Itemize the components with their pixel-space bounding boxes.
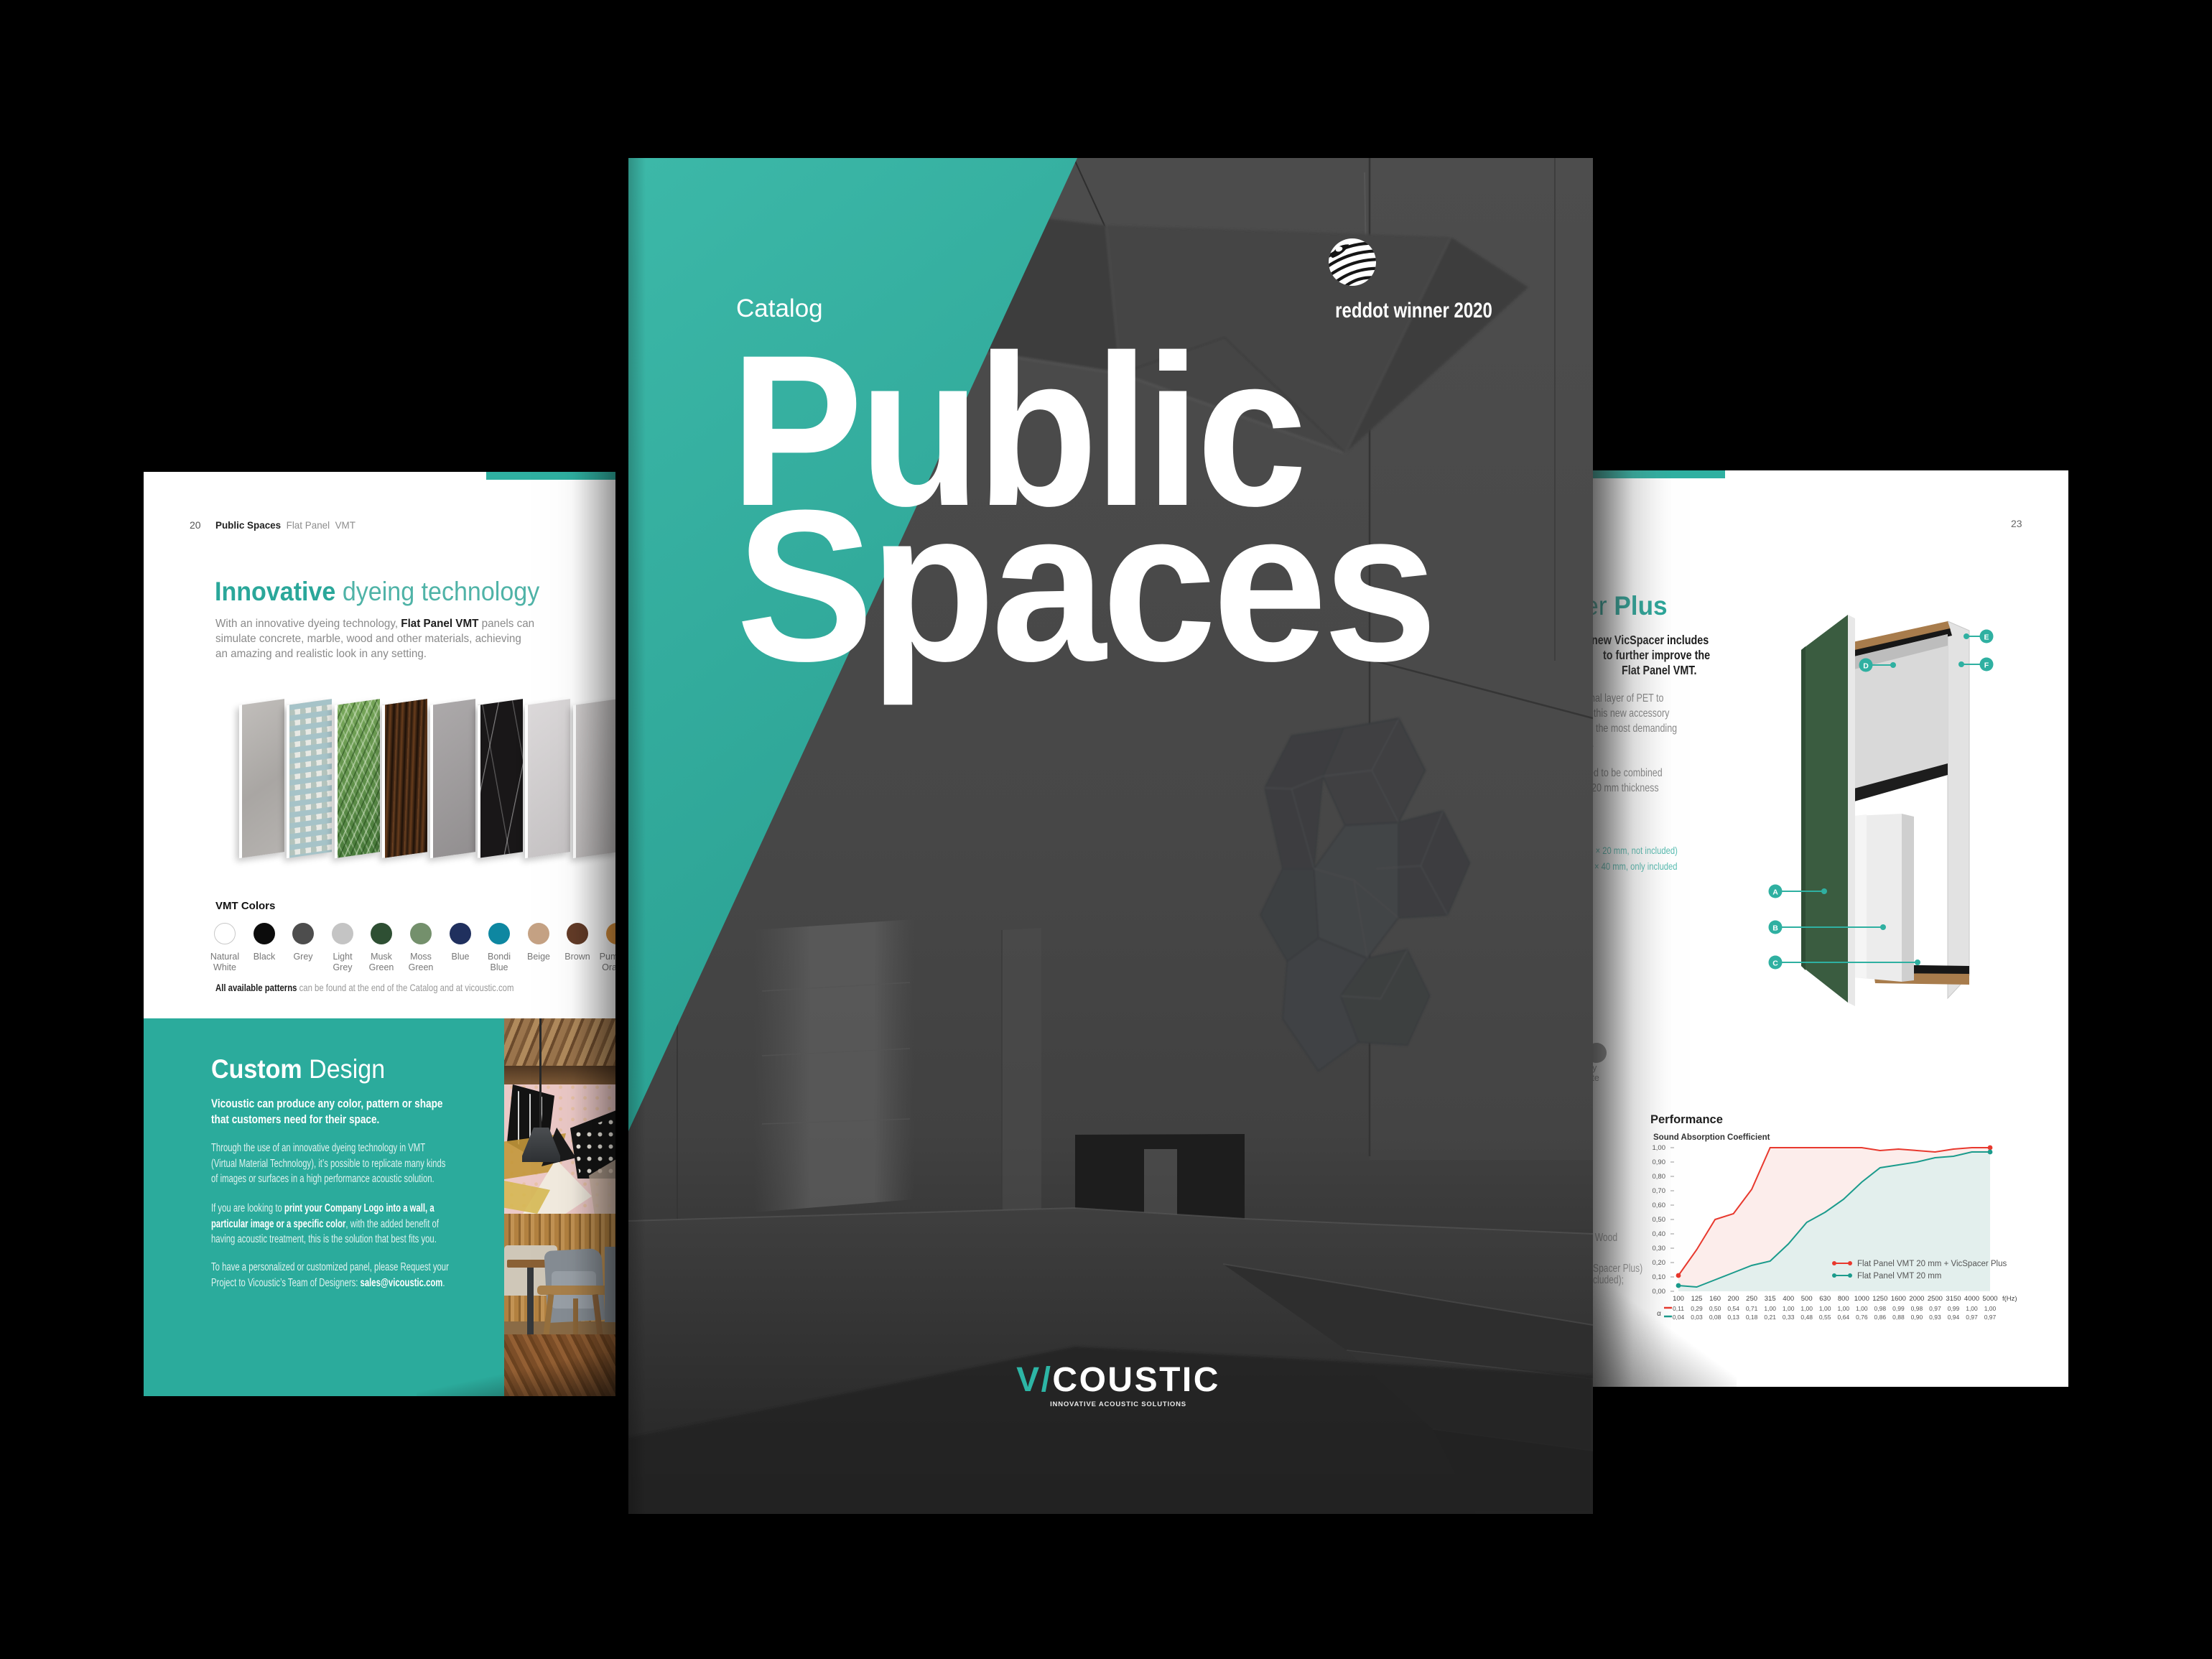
svg-text:630: 630	[1819, 1295, 1831, 1303]
svg-text:1,00: 1,00	[1966, 1305, 1978, 1312]
svg-text:C: C	[1772, 959, 1778, 968]
svg-text:0,90: 0,90	[1911, 1314, 1923, 1321]
svg-text:500: 500	[1801, 1295, 1813, 1303]
svg-text:0,18: 0,18	[1746, 1314, 1758, 1321]
svg-text:0,21: 0,21	[1764, 1314, 1776, 1321]
svg-text:1600: 1600	[1891, 1295, 1906, 1303]
svg-text:400: 400	[1783, 1295, 1794, 1303]
svg-text:0,99: 0,99	[1892, 1305, 1905, 1312]
svg-text:2000: 2000	[1909, 1295, 1924, 1303]
svg-text:1,00: 1,00	[1764, 1305, 1776, 1312]
svg-text:0,93: 0,93	[1929, 1314, 1941, 1321]
svg-text:D: D	[1863, 662, 1869, 671]
svg-text:2500: 2500	[1928, 1295, 1943, 1303]
svg-text:0,97: 0,97	[1966, 1314, 1978, 1321]
svg-text:250: 250	[1746, 1295, 1757, 1303]
svg-text:Flat Panel VMT 20 mm: Flat Panel VMT 20 mm	[1857, 1272, 1941, 1281]
svg-text:f(Hz): f(Hz)	[2002, 1295, 2017, 1303]
svg-text:800: 800	[1838, 1295, 1849, 1303]
svg-text:0,88: 0,88	[1892, 1314, 1905, 1321]
svg-text:F: F	[1984, 661, 1989, 670]
svg-text:1250: 1250	[1872, 1295, 1887, 1303]
svg-text:1,00: 1,00	[1819, 1305, 1831, 1312]
svg-text:1,00: 1,00	[1838, 1305, 1850, 1312]
svg-text:1,00: 1,00	[1800, 1305, 1813, 1312]
svg-text:0,76: 0,76	[1856, 1314, 1868, 1321]
svg-text:0,97: 0,97	[1984, 1314, 1997, 1321]
svg-text:0,86: 0,86	[1874, 1314, 1887, 1321]
svg-text:0,98: 0,98	[1911, 1305, 1923, 1312]
svg-text:1,00: 1,00	[1856, 1305, 1868, 1312]
svg-text:0,94: 0,94	[1948, 1314, 1960, 1321]
svg-text:0,71: 0,71	[1746, 1305, 1758, 1312]
svg-text:3150: 3150	[1946, 1295, 1961, 1303]
svg-text:0,64: 0,64	[1838, 1314, 1850, 1321]
svg-text:E: E	[1984, 633, 1989, 642]
svg-text:0,33: 0,33	[1783, 1314, 1795, 1321]
svg-text:A: A	[1772, 888, 1778, 897]
svg-text:5000: 5000	[1982, 1295, 1997, 1303]
svg-text:1000: 1000	[1854, 1295, 1869, 1303]
svg-text:0,55: 0,55	[1819, 1314, 1831, 1321]
svg-text:1,00: 1,00	[1783, 1305, 1795, 1312]
svg-text:0,99: 0,99	[1948, 1305, 1960, 1312]
svg-text:B: B	[1772, 924, 1778, 933]
svg-text:315: 315	[1765, 1295, 1776, 1303]
svg-text:0,97: 0,97	[1929, 1305, 1941, 1312]
svg-text:1,00: 1,00	[1984, 1305, 1997, 1312]
svg-text:Flat Panel VMT 20 mm + VicSpac: Flat Panel VMT 20 mm + VicSpacer Plus	[1857, 1260, 2007, 1268]
svg-text:0,98: 0,98	[1874, 1305, 1887, 1312]
svg-text:4000: 4000	[1964, 1295, 1979, 1303]
svg-text:0,48: 0,48	[1800, 1314, 1813, 1321]
